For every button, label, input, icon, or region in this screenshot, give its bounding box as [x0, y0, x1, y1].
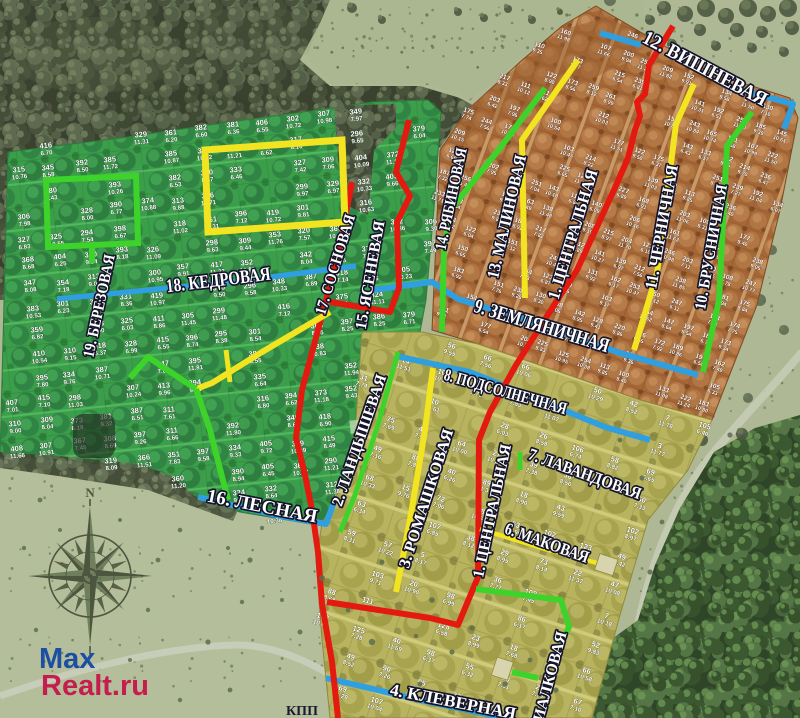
- svg-text:3596.82: 3596.82: [30, 324, 44, 341]
- svg-text:3097.06: 3097.06: [321, 154, 335, 171]
- svg-text:3296.97: 3296.97: [326, 178, 340, 195]
- svg-text:2969.65: 2969.65: [350, 128, 364, 145]
- svg-text:4157.10: 4157.10: [37, 392, 51, 409]
- svg-text:4166.70: 4166.70: [39, 140, 53, 157]
- svg-text:3116.66: 3116.66: [165, 425, 179, 442]
- svg-text:4167.12: 4167.12: [277, 301, 291, 318]
- svg-text:3826.60: 3826.60: [194, 122, 208, 139]
- svg-text:3109.15: 3109.15: [63, 345, 77, 362]
- svg-text:3816.36: 3816.36: [226, 119, 240, 136]
- svg-text:3796.71: 3796.71: [402, 309, 416, 326]
- svg-text:3478.08: 3478.08: [23, 277, 37, 294]
- svg-text:3349.33: 3349.33: [228, 442, 243, 459]
- svg-text:3286.99: 3286.99: [124, 338, 138, 355]
- svg-text:КПП: КПП: [286, 704, 318, 718]
- svg-text:3109.00: 3109.00: [8, 418, 22, 435]
- svg-text:4077.01: 4077.01: [5, 397, 19, 414]
- svg-text:Realt.ru: Realt.ru: [41, 670, 149, 702]
- svg-text:4158.49: 4158.49: [322, 433, 336, 450]
- svg-text:4046.25: 4046.25: [53, 251, 68, 268]
- svg-text:2947.54: 2947.54: [80, 227, 95, 244]
- svg-text:3256.03: 3256.03: [120, 315, 134, 332]
- svg-text:3018.54: 3018.54: [248, 326, 262, 343]
- svg-text:3796.04: 3796.04: [412, 123, 426, 140]
- svg-text:2958.38: 2958.38: [214, 328, 228, 345]
- svg-text:3349.76: 3349.76: [62, 369, 77, 386]
- svg-text:3876.51: 3876.51: [130, 405, 144, 422]
- svg-text:3928.50: 3928.50: [75, 157, 89, 174]
- svg-text:3906.77: 3906.77: [109, 199, 123, 216]
- svg-text:3826.53: 3826.53: [168, 172, 182, 189]
- svg-text:3277.42: 3277.42: [293, 157, 307, 174]
- svg-text:3288.00: 3288.00: [80, 205, 94, 222]
- svg-text:3547.18: 3547.18: [56, 277, 71, 294]
- svg-text:4186.90: 4186.90: [318, 411, 332, 428]
- svg-text:3688.68: 3688.68: [21, 254, 35, 271]
- svg-text:N: N: [85, 485, 95, 500]
- svg-text:3979.58: 3979.58: [196, 446, 210, 463]
- svg-text:3616.20: 3616.20: [164, 127, 178, 144]
- svg-text:4066.55: 4066.55: [255, 117, 269, 134]
- svg-text:3967.12: 3967.12: [234, 208, 248, 225]
- svg-text:3356.64: 3356.64: [253, 371, 267, 388]
- svg-text:4139.96: 4139.96: [157, 380, 171, 397]
- svg-text:4056.45: 4056.45: [261, 461, 275, 478]
- svg-text:4156.55: 4156.55: [156, 334, 170, 351]
- svg-text:3067.98: 3067.98: [17, 211, 31, 228]
- svg-text:3166.80: 3166.80: [256, 393, 270, 410]
- svg-text:4059.72: 4059.72: [259, 438, 273, 455]
- svg-text:3098.04: 3098.04: [40, 414, 54, 431]
- svg-text:3019.81: 3019.81: [296, 202, 310, 219]
- svg-text:3979.26: 3979.26: [133, 429, 147, 446]
- svg-text:3968.74: 3968.74: [185, 332, 199, 349]
- svg-text:3946.62: 3946.62: [284, 390, 299, 407]
- svg-text:3986.67: 3986.67: [113, 223, 127, 240]
- svg-text:2989.63: 2989.63: [205, 237, 219, 254]
- svg-text:4118.86: 4118.86: [152, 313, 166, 330]
- svg-text:3497.97: 3497.97: [349, 106, 363, 123]
- svg-text:3276.83: 3276.83: [17, 234, 31, 251]
- svg-text:3117.61: 3117.61: [162, 404, 176, 421]
- svg-text:3957.80: 3957.80: [35, 372, 49, 389]
- svg-text:3517.83: 3517.83: [167, 449, 181, 466]
- svg-text:3336.46: 3336.46: [229, 164, 243, 181]
- svg-text:3139.88: 3139.88: [171, 195, 185, 212]
- svg-text:3428.04: 3428.04: [299, 249, 313, 266]
- svg-text:3908.94: 3908.94: [231, 466, 245, 483]
- svg-text:2999.97: 2999.97: [295, 181, 309, 198]
- svg-text:3099.44: 3099.44: [238, 235, 252, 252]
